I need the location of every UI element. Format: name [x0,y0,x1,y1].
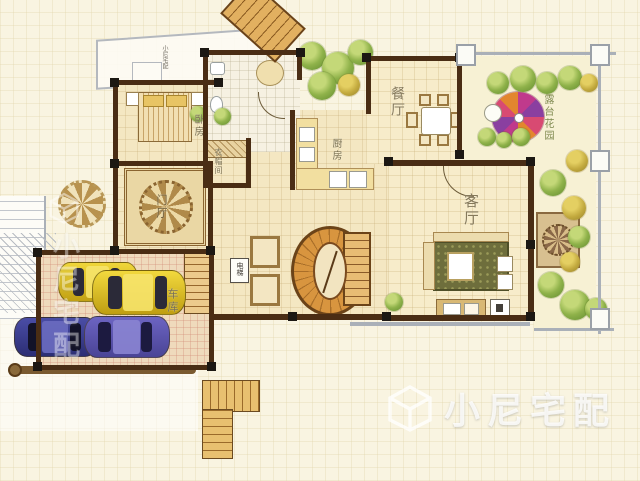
bed-pillow [166,95,187,107]
pillar [382,312,391,321]
pillar [384,157,393,166]
wall [457,56,462,156]
hall-armchair [250,236,280,268]
tv-screen [443,303,461,315]
living-plant [385,293,403,311]
bedroom-bed [138,92,192,142]
end-table [497,274,513,290]
dining-chair [406,112,418,128]
terrace-wall [598,52,601,334]
side-watermark-text: 小尼宅配 [44,232,83,364]
sofa-left [423,242,435,290]
tree [558,66,582,90]
elevator-box: 电梯 [230,258,249,283]
pillar [200,48,209,57]
pillar [110,246,119,255]
pillar [206,246,215,255]
pillar [33,248,42,257]
cabinet-glyph [496,304,503,312]
tree [308,72,336,100]
pillar [110,78,119,87]
white-pillar [456,44,476,66]
cube-logo-icon [48,192,80,224]
wall [366,56,462,61]
tree [536,72,558,94]
closet-label: 衣帽间 [214,148,222,175]
pillar [214,78,223,87]
umbrella-pole [514,113,524,123]
sink [210,62,225,75]
wall [113,161,213,166]
wall [36,365,214,370]
spiral-core [313,242,347,300]
dining-chair [419,94,431,106]
wall [382,315,534,321]
driveway-edge-knob [8,363,22,377]
yellow-bush [580,74,598,92]
white-pillar [590,150,610,172]
tv-cabinet-door [464,303,479,315]
bath-plant [214,108,231,125]
yellow-bush [562,196,586,220]
bottom-stair-upper [202,380,260,412]
pillar [362,53,371,62]
watermark: 小尼宅配 [386,382,616,434]
bedroom-label: 卧房 [192,114,202,138]
wall [246,138,251,188]
pillar [110,159,119,168]
yellow-bush [560,252,580,272]
dining-chair [437,134,449,146]
pillar [288,312,297,321]
sofa-top [433,232,509,242]
yellow-bush [566,150,588,172]
side-watermark: 小尼宅配 [44,192,83,364]
spiral-straight-flight [343,232,371,306]
dining-table [421,107,451,135]
pillar [455,150,464,159]
dining-chair [437,94,449,106]
wall [203,50,302,55]
terrace-table [484,104,502,122]
spiral-core-rail [322,251,337,293]
pillar [526,240,535,249]
tree [487,72,509,94]
tree [568,226,590,248]
tree [478,128,496,146]
tree [510,66,536,92]
elevator-label: 电梯 [236,262,243,276]
tree [512,128,530,146]
kitchen-label: 厨房 [330,138,340,162]
wall [208,161,213,251]
spiral-staircase [291,226,377,318]
pillar [526,312,535,321]
wall [209,250,214,370]
kitchen-counter-bottom [296,168,374,190]
pillar [33,362,42,371]
watermark-brand-text: 小尼宅配 [444,382,616,434]
coffee-table [447,252,474,281]
wall [212,314,384,320]
living-label: 客厅 [463,193,478,227]
tiny-vertical-annotation: 小尼宅配 [161,45,167,69]
kitchen-sink [299,127,315,142]
wall [366,56,371,114]
tree [496,132,512,148]
plinth-wall [350,322,530,326]
cube-logo-icon [386,384,434,432]
bottom-stair-lower [202,409,233,459]
hall-armchair [250,274,280,306]
bath-round-table [256,60,284,86]
pillar [207,362,216,371]
pillar [296,48,305,57]
wall [36,250,41,370]
straight-stair [184,250,212,314]
kitchen-appliance [329,171,347,188]
dining-chair [419,134,431,146]
purple-car [84,316,170,358]
kitchen-appliance [349,171,367,188]
tree [540,170,566,196]
dining-label: 餐厅 [390,86,404,118]
wall [290,110,295,190]
end-table [497,256,513,272]
nightstand [126,92,139,106]
kitchen-stove [299,147,315,162]
floor-plan-canvas: 卧房 衣帽间 门厅 厨房 餐厅 电梯 [0,0,640,481]
white-pillar [590,44,610,66]
foyer-label: 门厅 [156,194,167,220]
bed-pillow [143,95,164,107]
terrace-label: 露台花园 [542,94,552,142]
white-pillar [590,308,610,330]
wall [388,160,534,166]
pillar [526,157,535,166]
tree [538,272,564,298]
yellow-bush [338,74,360,96]
wall [113,249,213,254]
garage-label: 车库 [167,288,178,314]
